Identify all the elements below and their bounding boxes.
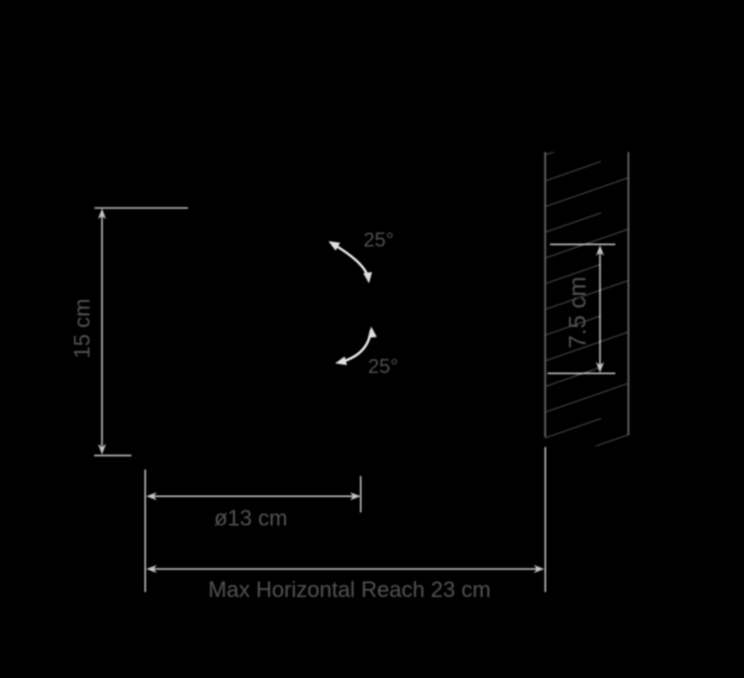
svg-text:15 cm: 15 cm xyxy=(70,299,95,359)
svg-text:ø13 cm: ø13 cm xyxy=(214,506,287,531)
svg-text:Max Horizontal Reach 23 cm: Max Horizontal Reach 23 cm xyxy=(208,577,490,602)
svg-text:25°: 25° xyxy=(364,230,394,252)
svg-text:7.5 cm: 7.5 cm xyxy=(565,276,592,348)
svg-text:25°: 25° xyxy=(368,356,398,378)
